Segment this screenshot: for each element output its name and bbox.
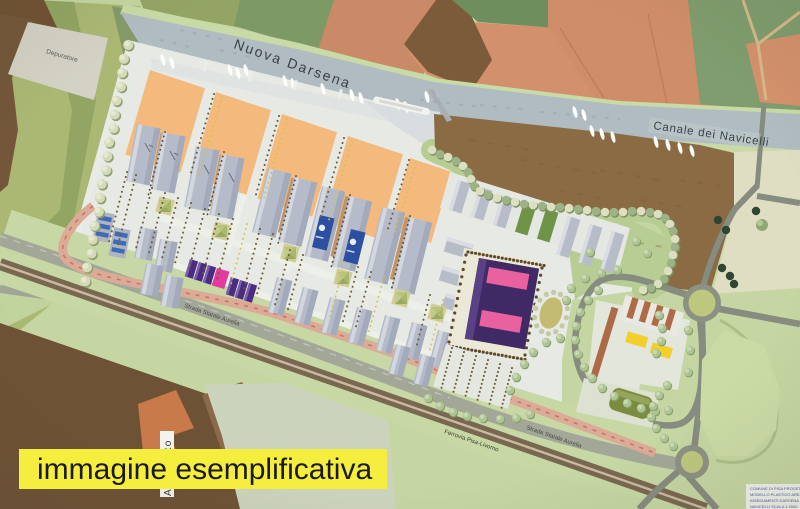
svg-text:immagine esemplificativa: immagine esemplificativa — [37, 453, 372, 486]
